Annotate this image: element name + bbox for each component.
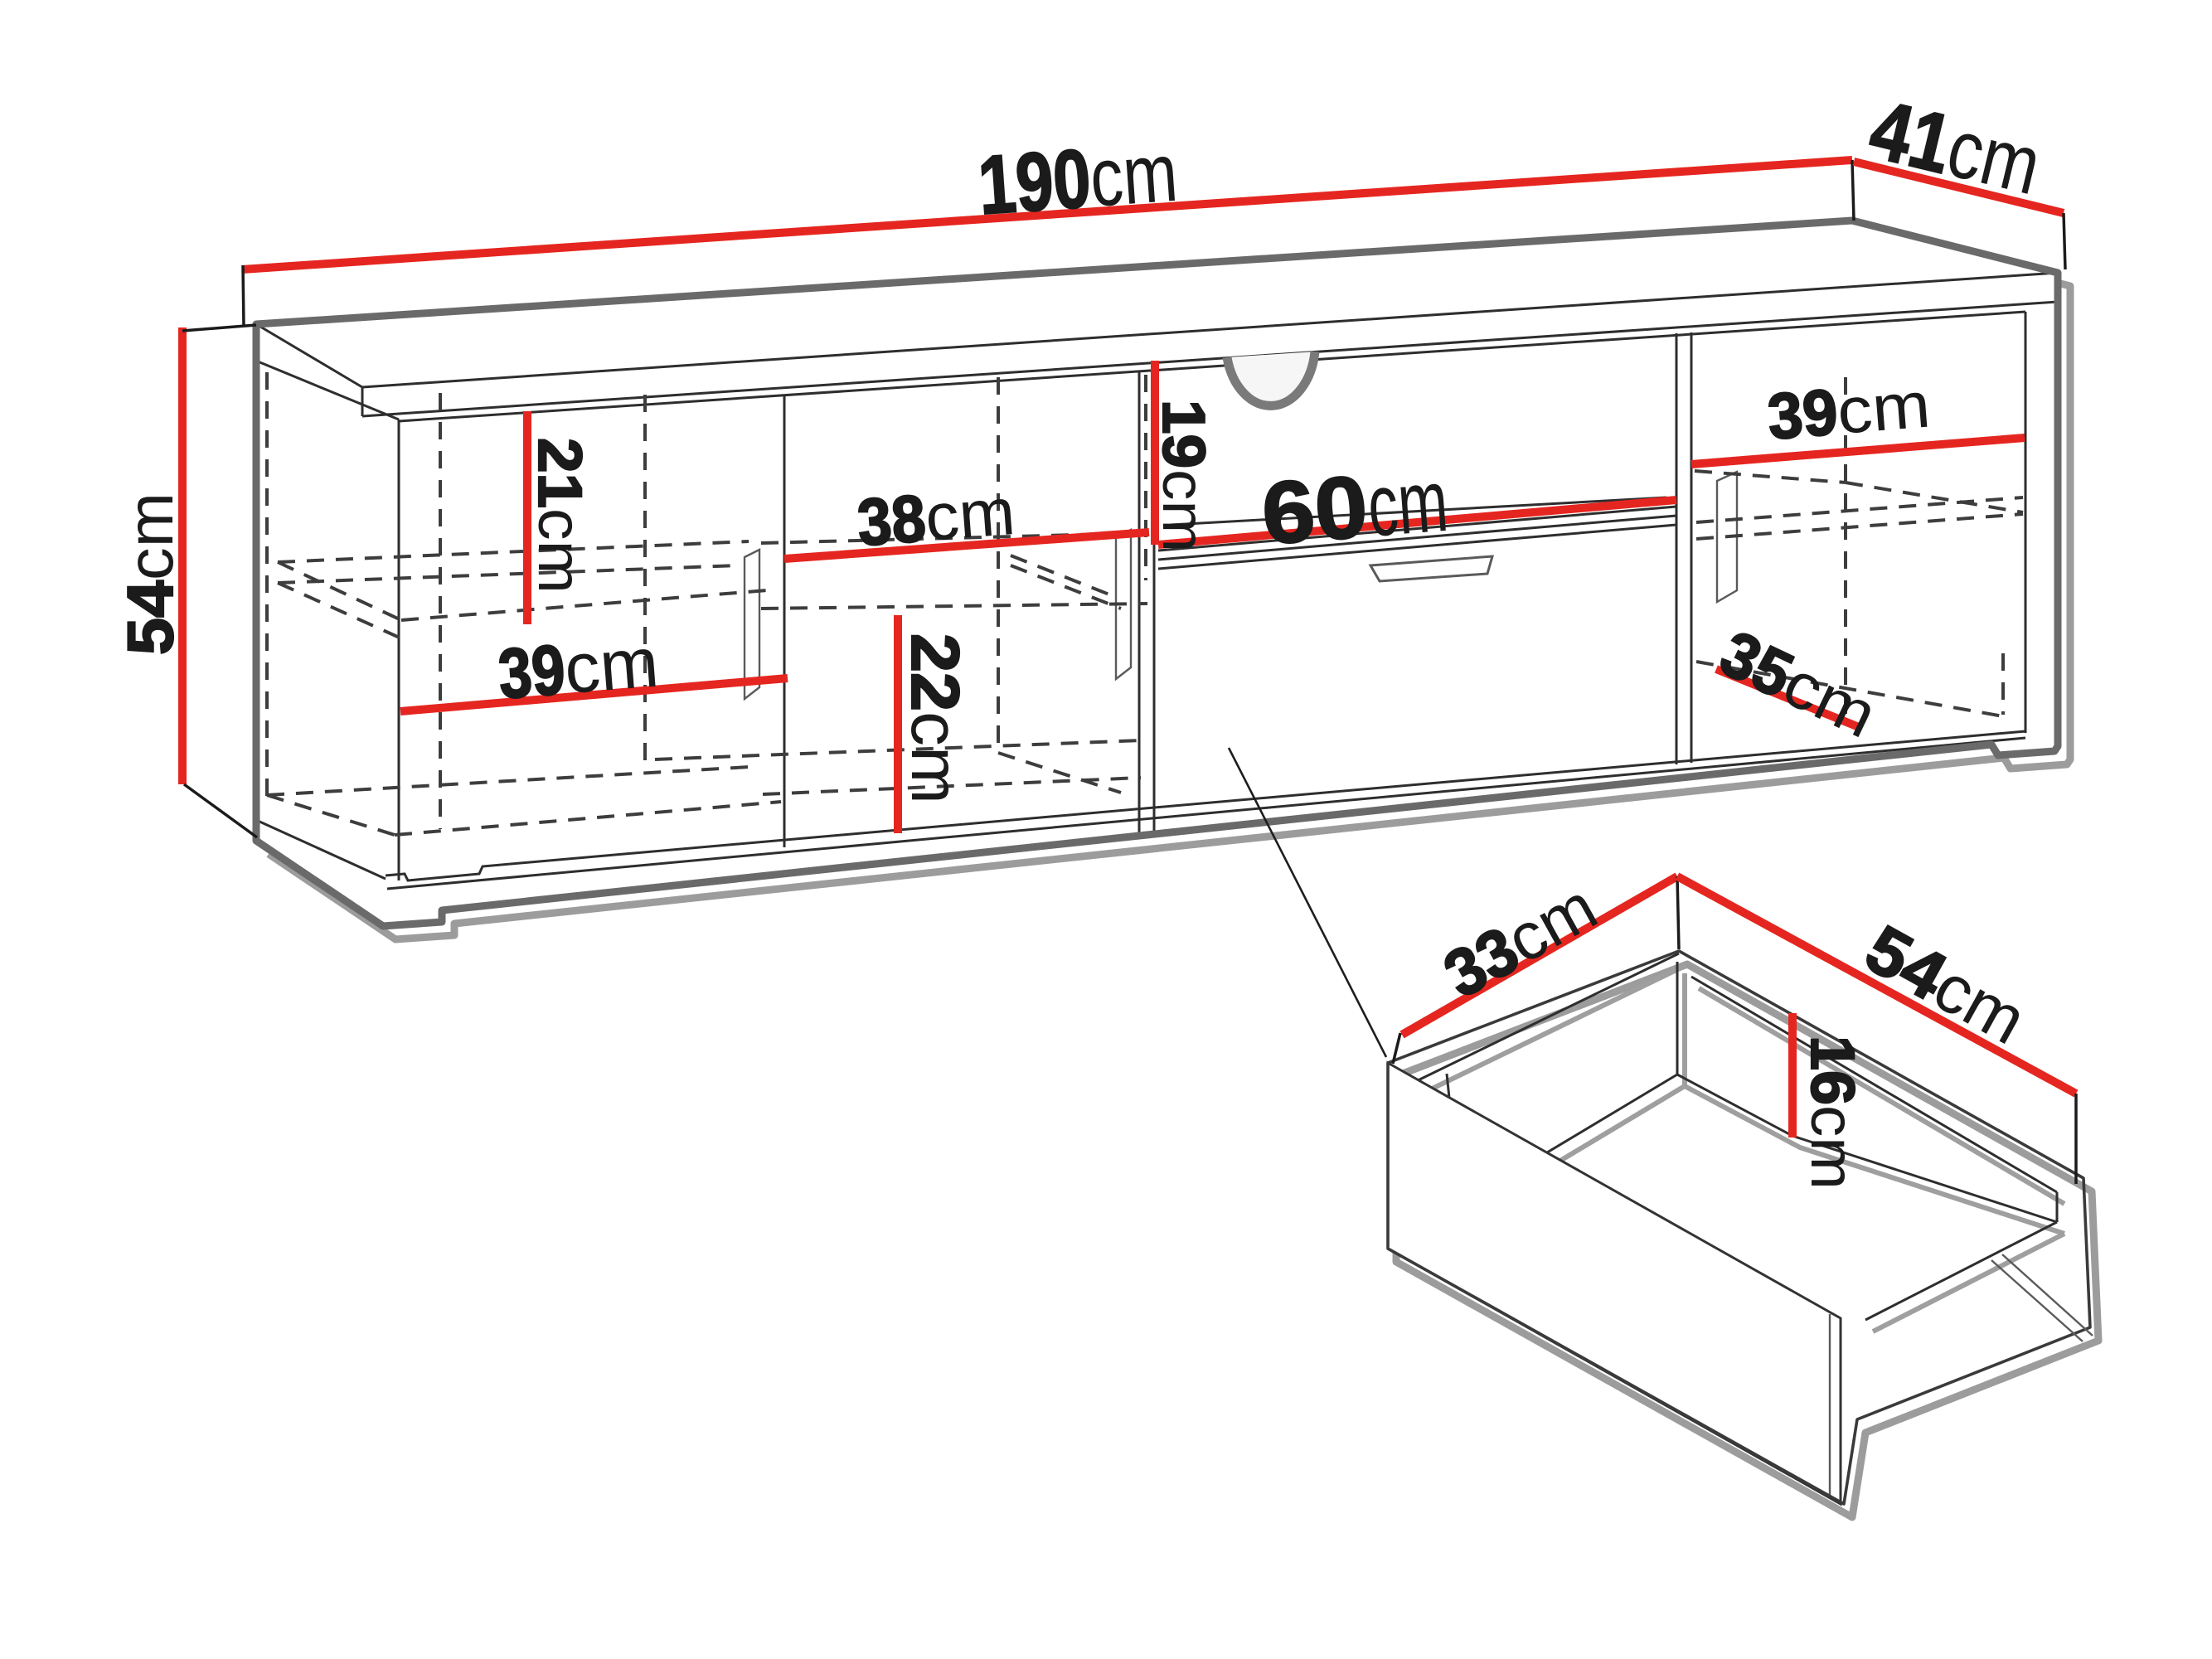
svg-text:21: 21: [526, 438, 594, 508]
svg-text:190: 190: [976, 132, 1094, 232]
svg-text:22: 22: [897, 633, 973, 711]
svg-text:60: 60: [1259, 458, 1370, 563]
svg-text:19: 19: [1150, 400, 1216, 468]
svg-text:38: 38: [855, 481, 928, 560]
svg-text:cm: cm: [1798, 1105, 1867, 1190]
svg-text:cm: cm: [1150, 469, 1216, 552]
svg-text:cm: cm: [526, 508, 594, 594]
svg-text:39: 39: [496, 630, 568, 714]
svg-text:54: 54: [114, 580, 187, 655]
svg-text:cm: cm: [923, 474, 1017, 555]
svg-text:cm: cm: [1087, 126, 1181, 225]
svg-text:cm: cm: [897, 711, 973, 804]
svg-text:cm: cm: [1365, 452, 1452, 555]
svg-text:16: 16: [1798, 1036, 1867, 1105]
svg-text:cm: cm: [562, 623, 662, 710]
svg-text:39: 39: [1765, 375, 1841, 453]
svg-text:cm: cm: [1835, 367, 1933, 448]
svg-text:cm: cm: [114, 492, 187, 580]
